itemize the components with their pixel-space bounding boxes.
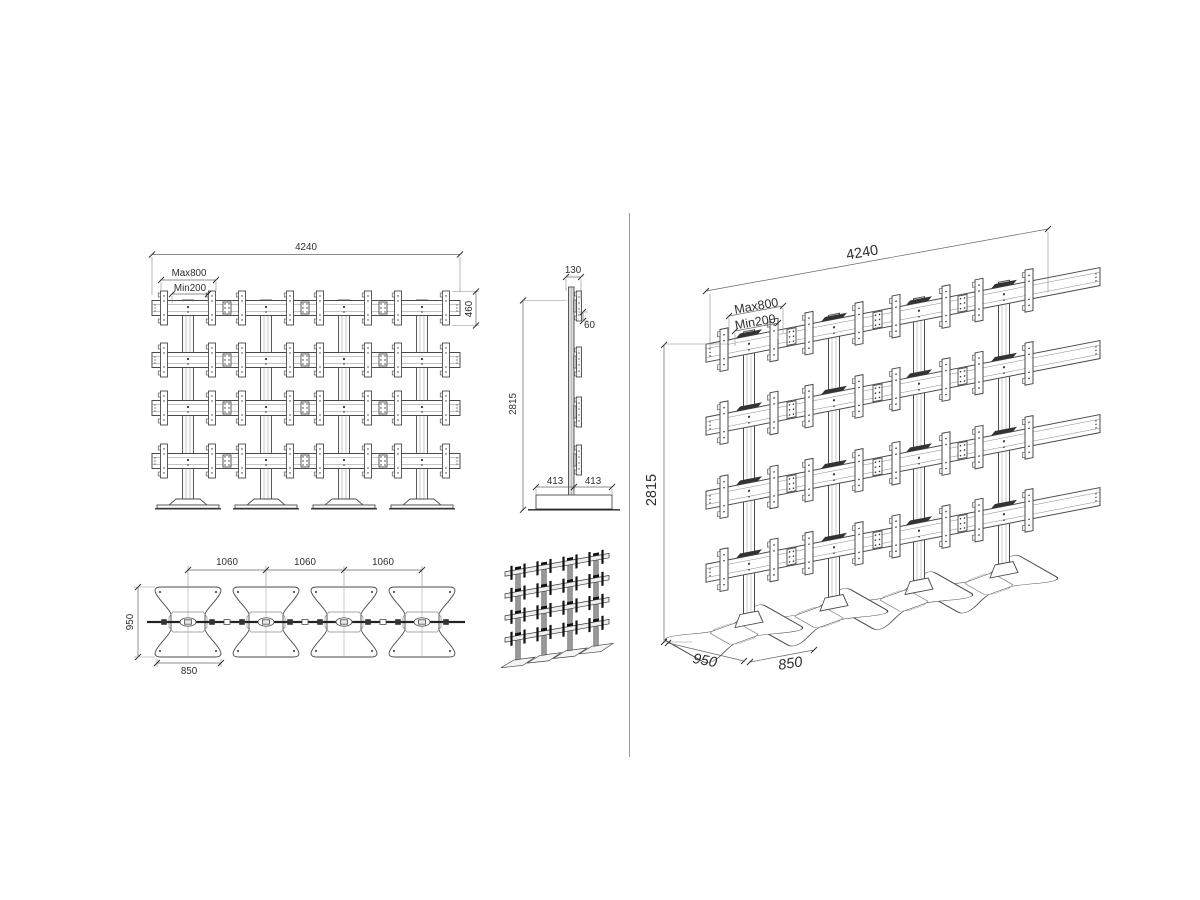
dot <box>228 363 229 364</box>
dot <box>211 395 212 396</box>
dot <box>397 366 398 367</box>
thumb-strip <box>601 550 603 564</box>
dot <box>154 457 155 458</box>
dot <box>241 371 242 372</box>
dot <box>163 295 164 296</box>
thumb-strip <box>601 616 603 630</box>
dot <box>380 464 381 465</box>
dot <box>380 456 381 457</box>
dot <box>445 371 446 372</box>
dot <box>343 459 345 461</box>
thumb-strip <box>588 552 590 566</box>
strip-hook <box>392 319 394 323</box>
strip-hook <box>440 319 442 323</box>
strip-hook <box>890 331 893 336</box>
side-base-back-dim-label: 413 <box>585 476 602 487</box>
dot <box>224 303 225 304</box>
dot <box>224 460 225 461</box>
dot <box>578 296 579 297</box>
dot <box>367 371 368 372</box>
strip-hook <box>284 446 286 450</box>
dot <box>384 407 385 408</box>
dot <box>154 362 155 363</box>
dot <box>421 459 423 461</box>
strip-hook <box>314 446 316 450</box>
pole-core <box>341 620 348 624</box>
dot <box>211 319 212 320</box>
dot <box>367 414 368 415</box>
dim-line <box>706 229 1048 291</box>
strip-hook <box>890 298 893 303</box>
foot-plate <box>313 505 375 508</box>
dot <box>578 468 579 469</box>
strip-hook <box>158 419 160 423</box>
dot <box>380 355 381 356</box>
strip-hook <box>803 315 806 320</box>
bracket-hook <box>575 470 577 474</box>
strip-hook <box>973 502 976 507</box>
pole <box>261 300 272 499</box>
dot <box>306 456 307 457</box>
pole <box>339 300 350 499</box>
persp-joint <box>958 441 967 459</box>
dim-tick <box>747 659 753 665</box>
dot <box>224 311 225 312</box>
dot <box>421 311 423 313</box>
dot <box>241 347 242 348</box>
strip-hook <box>440 446 442 450</box>
strip-top-view <box>317 619 323 625</box>
strip-hook <box>362 293 364 297</box>
thumb-strip <box>549 559 551 573</box>
top-spacing-dim-label-3: 1060 <box>372 557 394 568</box>
strip-hook <box>440 371 442 375</box>
rail-joint <box>379 455 387 467</box>
dot <box>163 371 164 372</box>
dot <box>265 358 267 360</box>
dot <box>445 366 446 367</box>
dot <box>241 400 242 401</box>
strip-hook <box>206 472 208 476</box>
dot <box>456 307 457 308</box>
dot <box>445 395 446 396</box>
top-base-depth-dim-label: 950 <box>125 613 136 630</box>
strip-hook <box>236 371 238 375</box>
dot <box>397 295 398 296</box>
corner-bolt <box>393 591 395 593</box>
dot <box>397 300 398 301</box>
strip-hook <box>853 525 856 530</box>
joint-top-view <box>302 620 308 625</box>
strip-hook <box>803 462 806 467</box>
persp-joint <box>873 384 882 402</box>
strip-hook <box>940 288 943 293</box>
dot <box>456 356 457 357</box>
strip-hook <box>973 462 976 467</box>
dot <box>578 420 579 421</box>
dot <box>319 419 320 420</box>
strip-hook <box>314 345 316 349</box>
strip-hook <box>973 429 976 434</box>
perspective-view <box>661 226 1100 672</box>
dot <box>163 314 164 315</box>
strip-hook <box>362 371 364 375</box>
dot <box>163 300 164 301</box>
dot <box>211 467 212 468</box>
dot <box>367 400 368 401</box>
dot <box>397 352 398 353</box>
strip-hook <box>236 446 238 450</box>
strip-hook <box>718 584 721 589</box>
strip-hook <box>206 371 208 375</box>
persp-joint <box>787 475 796 493</box>
side-height-dim-label: 2815 <box>508 393 519 415</box>
strip-top-view <box>395 619 401 625</box>
side-view <box>520 274 620 513</box>
dot <box>456 407 457 408</box>
corner-bolt <box>215 650 217 652</box>
dot <box>228 355 229 356</box>
thumb-strip <box>510 632 512 646</box>
bracket-arm <box>574 406 577 418</box>
strip-hook <box>392 446 394 450</box>
persp-height-dim-label: 2815 <box>644 474 660 506</box>
dot <box>187 311 189 313</box>
thumb-strip <box>536 605 538 619</box>
thumb-strip <box>523 563 525 577</box>
dot <box>241 467 242 468</box>
top-spacing-dim-label-2: 1060 <box>294 557 316 568</box>
dot <box>224 307 225 308</box>
dot <box>319 366 320 367</box>
dot <box>397 467 398 468</box>
strip-hook <box>440 293 442 297</box>
strip-hook <box>158 446 160 450</box>
dot <box>289 395 290 396</box>
strip-hook <box>362 446 364 450</box>
dot <box>421 464 423 466</box>
strip-hook <box>392 345 394 349</box>
strip-hook <box>1023 345 1026 350</box>
dot <box>302 464 303 465</box>
rail-joint <box>379 402 387 414</box>
persp-rail <box>706 415 1100 510</box>
dot <box>343 464 345 466</box>
dot <box>397 414 398 415</box>
dot <box>302 355 303 356</box>
dot <box>163 366 164 367</box>
strip-hook <box>392 472 394 476</box>
rail-joint <box>301 402 309 414</box>
dot <box>302 363 303 364</box>
strip-hook <box>940 321 943 326</box>
strip-hook <box>440 419 442 423</box>
dot <box>397 395 398 396</box>
dot <box>163 352 164 353</box>
dot <box>445 467 446 468</box>
thumb-strip <box>510 588 512 602</box>
strip-hook <box>206 319 208 323</box>
dot <box>224 359 225 360</box>
corner-bolt <box>315 591 317 593</box>
strip-hook <box>973 535 976 540</box>
bracket-hook <box>575 422 577 426</box>
strip-hook <box>284 371 286 375</box>
strip-top-view <box>443 619 449 625</box>
strip-top-view <box>239 619 245 625</box>
dot <box>384 355 385 356</box>
strip-hook <box>803 568 806 573</box>
dot <box>367 472 368 473</box>
dot <box>187 306 189 308</box>
dot <box>228 456 229 457</box>
dot <box>319 352 320 353</box>
dot <box>241 414 242 415</box>
dot <box>302 407 303 408</box>
dot <box>384 307 385 308</box>
thumb-strip <box>549 603 551 617</box>
dot <box>241 352 242 353</box>
bracket-plate <box>577 397 582 427</box>
dot <box>154 310 155 311</box>
strip-hook <box>158 393 160 397</box>
strip-hook <box>803 535 806 540</box>
persp-joint <box>787 548 796 566</box>
dot <box>228 359 229 360</box>
dim-tick <box>1045 226 1051 232</box>
joint-top-view <box>224 620 230 625</box>
foot-pedestal <box>325 499 363 505</box>
thumb-strip <box>523 607 525 621</box>
pole-core <box>419 620 426 624</box>
iso-thumbnail-view <box>501 548 613 669</box>
bracket-arm <box>574 454 577 466</box>
dot <box>319 347 320 348</box>
dot <box>445 319 446 320</box>
corner-bolt <box>159 650 161 652</box>
strip-hook <box>853 411 856 416</box>
base-side <box>536 495 612 509</box>
dot <box>384 456 385 457</box>
strip-hook <box>803 388 806 393</box>
strip-hook <box>718 551 721 556</box>
dot <box>211 371 212 372</box>
dot <box>578 402 579 403</box>
dot <box>367 352 368 353</box>
dot <box>367 319 368 320</box>
dot <box>578 408 579 409</box>
dot <box>211 414 212 415</box>
pole <box>417 300 428 499</box>
dot <box>228 311 229 312</box>
dot <box>154 307 155 308</box>
strip-hook <box>284 393 286 397</box>
thumb-strip <box>575 554 577 568</box>
strip-hook <box>314 472 316 476</box>
dot <box>224 355 225 356</box>
dot <box>265 464 267 466</box>
strip-hook <box>718 331 721 336</box>
dot <box>319 400 320 401</box>
thumb-rail <box>505 619 609 642</box>
dot <box>380 403 381 404</box>
dot <box>384 464 385 465</box>
strip-hook <box>973 282 976 287</box>
drawing-page: 4240 Max800 Min200 460 130 60 2815 413 4… <box>0 0 1200 900</box>
thumb-strip <box>575 620 577 634</box>
front-vesa-max-dim-label: Max800 <box>172 268 207 279</box>
persp-joint <box>787 401 796 419</box>
dot <box>306 359 307 360</box>
dot <box>187 358 189 360</box>
dot <box>384 411 385 412</box>
dot <box>456 410 457 411</box>
dot <box>289 295 290 296</box>
dot <box>380 460 381 461</box>
thumb-strip <box>588 618 590 632</box>
corner-bolt <box>449 591 451 593</box>
dot <box>289 300 290 301</box>
strip-hook <box>236 319 238 323</box>
strip-hook <box>890 518 893 523</box>
dot <box>578 414 579 415</box>
dot <box>265 306 267 308</box>
thumb-strip <box>575 576 577 590</box>
dot <box>211 453 212 454</box>
dot <box>384 460 385 461</box>
dot <box>421 406 423 408</box>
dot <box>163 319 164 320</box>
strip-hook <box>206 345 208 349</box>
persp-joint <box>873 531 882 549</box>
strip-hook <box>853 378 856 383</box>
dot <box>343 363 345 365</box>
strip-hook <box>362 419 364 423</box>
dot <box>456 362 457 363</box>
dot <box>578 358 579 359</box>
dot <box>228 307 229 308</box>
dot <box>421 306 423 308</box>
dot <box>228 403 229 404</box>
strip-hook <box>1023 305 1026 310</box>
rail-joint <box>379 354 387 366</box>
dot <box>384 363 385 364</box>
strip-hook <box>440 472 442 476</box>
dot <box>241 448 242 449</box>
dot <box>228 460 229 461</box>
dot <box>228 407 229 408</box>
dot <box>241 300 242 301</box>
dot <box>241 453 242 454</box>
dot <box>224 363 225 364</box>
dot <box>289 366 290 367</box>
dot <box>154 410 155 411</box>
dot <box>445 295 446 296</box>
persp-rail <box>706 341 1100 436</box>
dot <box>241 366 242 367</box>
persp-joint <box>958 514 967 532</box>
strip-hook <box>940 394 943 399</box>
strip-hook <box>768 469 771 474</box>
dot <box>445 448 446 449</box>
strip-top-view <box>287 619 293 625</box>
corner-bolt <box>393 650 395 652</box>
strip-hook <box>392 393 394 397</box>
strip-hook <box>940 361 943 366</box>
strip-hook <box>718 511 721 516</box>
thumb-strip <box>523 585 525 599</box>
corner-bolt <box>293 591 295 593</box>
dot <box>319 300 320 301</box>
dot <box>367 419 368 420</box>
strip-hook <box>314 293 316 297</box>
foot-pedestal <box>247 499 285 505</box>
line <box>706 354 1100 431</box>
top-base-width-dim-label: 850 <box>181 666 198 677</box>
dot <box>154 356 155 357</box>
thumb-strip <box>549 625 551 639</box>
dot <box>456 310 457 311</box>
strip-hook <box>890 371 893 376</box>
dot <box>380 303 381 304</box>
dot <box>163 414 164 415</box>
dot <box>289 467 290 468</box>
strip-hook <box>718 364 721 369</box>
dot <box>445 400 446 401</box>
dot <box>224 464 225 465</box>
dot <box>397 453 398 454</box>
dot <box>456 359 457 360</box>
strip-hook <box>853 558 856 563</box>
dot <box>578 308 579 309</box>
strip-hook <box>440 393 442 397</box>
dot <box>211 314 212 315</box>
strip-hook <box>803 348 806 353</box>
dot <box>319 314 320 315</box>
strip-hook <box>284 472 286 476</box>
strip-hook <box>284 345 286 349</box>
dot <box>319 472 320 473</box>
thumb-strip <box>536 627 538 641</box>
front-bracket-height-dim-label: 460 <box>464 300 475 317</box>
dot <box>384 311 385 312</box>
dot <box>154 404 155 405</box>
dot <box>289 472 290 473</box>
strip-hook <box>940 468 943 473</box>
persp-base-width-dim-label: 850 <box>777 654 803 674</box>
dot <box>302 359 303 360</box>
dot <box>421 411 423 413</box>
strip-hook <box>284 293 286 297</box>
foot-pedestal <box>403 499 441 505</box>
strip-hook <box>158 345 160 349</box>
thumb-rail <box>505 553 609 576</box>
dot <box>456 304 457 305</box>
strip-hook <box>314 419 316 423</box>
rail-joint <box>223 302 231 314</box>
dot <box>367 448 368 449</box>
dot <box>384 303 385 304</box>
dot <box>445 314 446 315</box>
persp-joint <box>873 311 882 329</box>
dot <box>154 463 155 464</box>
thumb-strip <box>588 596 590 610</box>
strip-hook <box>718 478 721 483</box>
thumb-strip <box>601 572 603 586</box>
corner-bolt <box>371 591 373 593</box>
dot <box>154 407 155 408</box>
bracket-arm <box>574 300 577 312</box>
